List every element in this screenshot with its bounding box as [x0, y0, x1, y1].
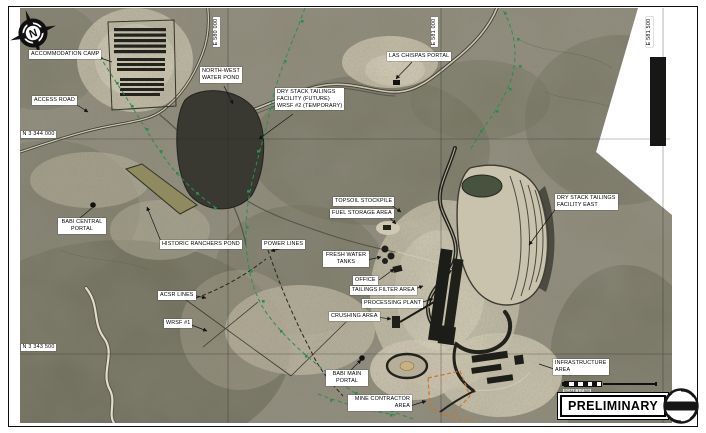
label-power-lines: POWER LINES	[262, 240, 305, 249]
photo-void-bar	[650, 57, 666, 146]
label-tailings-filter-area: TAILINGS FILTER AREA	[350, 286, 417, 295]
label-accommodation-camp: ACCOMMODATION CAMP	[29, 50, 101, 59]
preliminary-stamp: PRELIMINARY	[560, 395, 666, 417]
label-north-west-water-pond: NORTH-WEST WATER POND	[200, 67, 242, 83]
north-west-water-pond-shape	[177, 91, 264, 209]
label-dry-stack-tailings-future: DRY STACK TAILINGS FACILITY (FUTURE) WRS…	[275, 88, 344, 110]
label-babi-main-portal: BABI MAIN PORTAL	[326, 370, 368, 386]
label-topsoil-stockpile: TOPSOIL STOCKPILE	[333, 197, 394, 206]
label-historic-ranchers-pond: HISTORIC RANCHERS POND	[160, 240, 242, 249]
label-crushing-area: CRUSHING AREA	[329, 312, 380, 321]
label-mine-contractor-area: MINE CONTRACTOR AREA	[348, 395, 412, 411]
grid-label-northing-3344000: N 3 344 000	[21, 131, 56, 138]
label-infrastructure-area: INFRASTRUCTURE AREA	[553, 359, 609, 375]
label-dry-stack-tailings-east: DRY STACK TAILINGS FACILITY EAST	[555, 194, 618, 210]
label-babi-central-portal: BABI CENTRAL PORTAL	[58, 218, 106, 234]
label-office: OFFICE	[353, 276, 378, 285]
company-logo-icon	[661, 386, 701, 426]
label-las-chispas-portal: LAS CHISPAS PORTAL	[387, 52, 451, 61]
drawing-sheet: N ACCOMMODATION CAMP ACCESS ROAD NORTH-W…	[0, 0, 706, 433]
label-acsr-lines: ACSR LINES	[158, 291, 196, 300]
grid-label-northing-3343500: N 3 343 500	[21, 344, 56, 351]
scale-bar	[562, 381, 657, 387]
grid-label-easting-581500: E 581 500	[646, 17, 653, 47]
label-fresh-water-tanks: FRESH WATER TANKS	[323, 251, 369, 267]
label-fuel-storage-area: FUEL STORAGE AREA	[330, 209, 394, 218]
grid-label-easting-580000: E 580 000	[213, 17, 220, 47]
label-access-road: ACCESS ROAD	[32, 96, 77, 105]
label-wrsf-1: WRSF #1	[164, 319, 192, 328]
label-processing-plant: PROCESSING PLANT	[362, 299, 423, 308]
grid-label-easting-581000: E 581 000	[431, 17, 438, 47]
scale-text: SCALE 1:7,500	[563, 389, 591, 393]
